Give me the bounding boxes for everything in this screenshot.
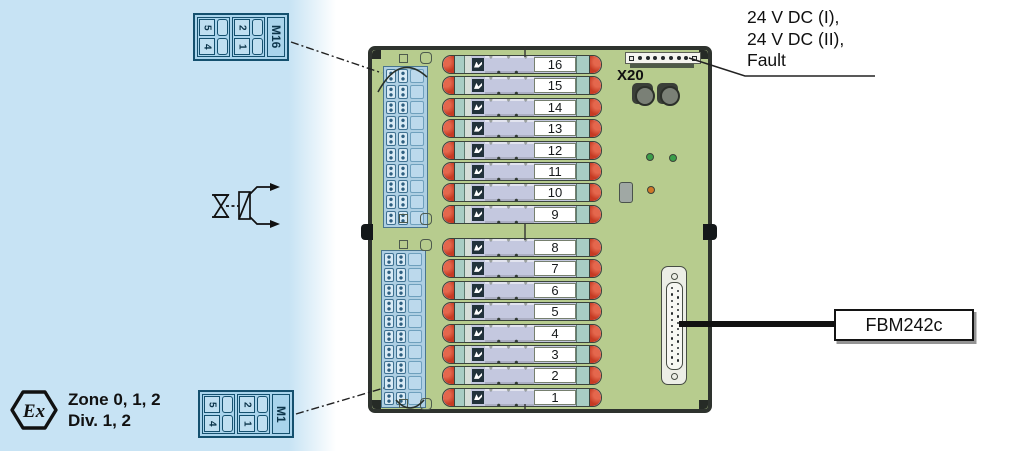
mounting-clip-right	[703, 224, 717, 240]
module-red-cap-icon	[443, 346, 455, 363]
terminal-cell	[408, 268, 422, 281]
module-segment	[465, 120, 471, 137]
channel-module: 9	[442, 205, 602, 224]
module-segment	[465, 303, 471, 320]
module-red-cap-icon	[589, 56, 601, 73]
x20-pin-icon	[677, 56, 681, 60]
terminal-pin-cell	[398, 164, 408, 178]
module-logo-icon	[472, 144, 484, 157]
module-end-segment	[576, 282, 589, 299]
terminal-cell	[410, 69, 424, 83]
module-end-segment	[455, 303, 465, 320]
module-end-segment	[455, 282, 465, 299]
mounting-hole	[420, 398, 432, 410]
terminal-pin-cell	[398, 101, 408, 115]
module-body	[485, 367, 534, 384]
mounting-hole	[399, 399, 408, 408]
module-end-segment	[455, 163, 465, 180]
channel-module: 14	[442, 98, 602, 117]
mounting-hole	[399, 214, 408, 223]
module-segment	[465, 77, 471, 94]
module-red-cap-icon	[443, 99, 455, 116]
terminal-pin-cell	[398, 85, 408, 99]
module-red-cap-icon	[589, 346, 601, 363]
dsub-pin	[677, 353, 679, 355]
hazard-zone-label: Ex Zone 0, 1, 2 Div. 1, 2	[10, 388, 161, 432]
module-segment	[465, 163, 471, 180]
dsub-pin	[671, 337, 673, 339]
dsub-pin	[671, 319, 673, 321]
terminal-cell	[408, 253, 422, 266]
ex-hexagon-icon: Ex	[10, 388, 58, 432]
module-segment	[465, 346, 471, 363]
orange-led	[647, 186, 655, 194]
channel-module: 8	[442, 238, 602, 257]
channel-module: 15	[442, 76, 602, 95]
power-line-1: 24 V DC (I),	[747, 7, 844, 29]
terminal-pin-cell	[384, 315, 394, 328]
module-red-cap-icon	[589, 389, 601, 406]
module-red-cap-icon	[443, 120, 455, 137]
dsub-pin	[671, 363, 673, 365]
channel-module: 11	[442, 162, 602, 181]
module-body	[485, 303, 534, 320]
terminal-cell	[408, 330, 422, 343]
terminal-block-m16: 5 4 2 1 M16	[193, 13, 289, 61]
channel-number-label: 6	[534, 283, 576, 298]
module-body	[485, 120, 534, 137]
mounting-hole	[399, 240, 408, 249]
channel-module: 13	[442, 119, 602, 138]
module-segment	[465, 184, 471, 201]
terminal-pin-cell	[396, 253, 406, 266]
dsub-pin	[671, 331, 673, 333]
terminal-block-m1: 5 4 2 1 M1	[198, 390, 294, 438]
dsub-pin	[677, 290, 679, 292]
terminal-cell	[408, 284, 422, 297]
channel-module: 16	[442, 55, 602, 74]
dsub-pin	[671, 287, 673, 289]
x20-connector	[625, 52, 701, 64]
dsub-pin	[671, 300, 673, 302]
channel-number-label: 3	[534, 347, 576, 362]
mounting-clip-left	[361, 224, 373, 240]
module-body	[485, 260, 534, 277]
dsub-pin	[671, 344, 673, 346]
terminal-pin-cell	[386, 211, 396, 225]
dsub-connector	[661, 266, 687, 385]
channel-number-label: 16	[534, 57, 576, 72]
channel-number-label: 2	[534, 368, 576, 383]
module-red-cap-icon	[589, 282, 601, 299]
module-body	[485, 142, 534, 159]
terminal-pin-cell	[386, 164, 396, 178]
module-logo-icon	[472, 58, 484, 71]
channel-module: 12	[442, 141, 602, 160]
dsub-pin	[671, 325, 673, 327]
mounting-hole	[420, 213, 432, 225]
terminal-pin-cell	[384, 361, 394, 374]
fuse-holder-icon	[632, 83, 653, 104]
module-end-segment	[576, 120, 589, 137]
module-segment	[465, 367, 471, 384]
module-end-segment	[455, 325, 465, 342]
module-end-segment	[576, 303, 589, 320]
fbm242c-label-box: FBM242c	[834, 309, 974, 341]
terminal-pin-cell	[384, 284, 394, 297]
board-corner-notch	[699, 400, 708, 409]
terminal-pin-slot	[222, 415, 233, 432]
terminal-pin-cell	[396, 330, 406, 343]
terminal-cell	[408, 361, 422, 374]
module-end-segment	[455, 367, 465, 384]
dsub-pin	[677, 334, 679, 336]
terminal-group: 2 1	[237, 394, 270, 434]
module-red-cap-icon	[443, 239, 455, 256]
terminal-pin-cell	[384, 268, 394, 281]
module-logo-icon	[472, 186, 484, 199]
dsub-pin	[677, 359, 679, 361]
module-body	[485, 325, 534, 342]
terminal-pin-slot	[257, 396, 268, 413]
terminal-pin-cell	[386, 195, 396, 209]
dsub-pin	[671, 312, 673, 314]
module-body	[485, 389, 534, 406]
terminal-pin-cell	[396, 315, 406, 328]
terminal-pin-cell	[386, 69, 396, 83]
module-segment	[465, 56, 471, 73]
module-end-segment	[455, 99, 465, 116]
module-red-cap-icon	[443, 389, 455, 406]
green-led	[646, 153, 654, 161]
channel-module: 10	[442, 183, 602, 202]
module-red-cap-icon	[443, 303, 455, 320]
dsub-pin	[677, 315, 679, 317]
terminal-pin-slot	[222, 396, 233, 413]
terminal-cell	[410, 101, 424, 115]
module-end-segment	[576, 163, 589, 180]
module-segment	[465, 142, 471, 159]
module-red-cap-icon	[589, 163, 601, 180]
terminal-group: 5 4	[197, 17, 230, 57]
channel-module: 2	[442, 366, 602, 385]
module-segment	[465, 389, 471, 406]
module-segment	[465, 282, 471, 299]
module-segment	[465, 325, 471, 342]
channel-group-top: 16 15	[442, 55, 602, 224]
board-corner-notch	[372, 50, 381, 59]
fbm242c-label: FBM242c	[865, 315, 942, 336]
module-end-segment	[455, 56, 465, 73]
module-red-cap-icon	[589, 77, 601, 94]
channel-module: 6	[442, 281, 602, 300]
module-logo-icon	[472, 391, 484, 404]
module-logo-icon	[472, 122, 484, 135]
channel-number-label: 15	[534, 78, 576, 93]
module-logo-icon	[472, 348, 484, 361]
module-end-segment	[455, 120, 465, 137]
terminal-pin-cell	[398, 69, 408, 83]
channel-module: 4	[442, 324, 602, 343]
terminal-group: 2 1	[232, 17, 265, 57]
module-red-cap-icon	[443, 260, 455, 277]
x20-label: X20	[617, 67, 644, 84]
module-red-cap-icon	[443, 325, 455, 342]
terminal-pin-number: 5	[204, 396, 220, 413]
module-body	[485, 346, 534, 363]
module-body	[485, 239, 534, 256]
terminal-cell	[410, 116, 424, 130]
dsub-pin-field	[666, 282, 683, 370]
dsub-pin	[677, 328, 679, 330]
module-body	[485, 56, 534, 73]
module-red-cap-icon	[443, 184, 455, 201]
terminal-pin-cell	[384, 392, 394, 405]
terminal-pin-cell	[384, 253, 394, 266]
terminal-pin-number: 1	[234, 38, 250, 55]
module-red-cap-icon	[443, 206, 455, 223]
terminal-pin-cell	[398, 148, 408, 162]
x20-pin-icon	[646, 56, 650, 60]
module-logo-icon	[472, 208, 484, 221]
x20-pin-icon	[669, 56, 673, 60]
module-red-cap-icon	[589, 184, 601, 201]
module-red-cap-icon	[589, 206, 601, 223]
terminal-cell	[408, 315, 422, 328]
terminal-pin-cell	[398, 180, 408, 194]
module-end-segment	[576, 260, 589, 277]
module-red-cap-icon	[589, 260, 601, 277]
terminal-pin-cell	[386, 148, 396, 162]
channel-number-label: 13	[534, 121, 576, 136]
terminal-pin-number: 2	[234, 19, 250, 36]
dsub-pin	[677, 303, 679, 305]
module-segment	[465, 260, 471, 277]
terminal-pin-number: 4	[204, 415, 220, 432]
module-red-cap-icon	[589, 303, 601, 320]
module-body	[485, 282, 534, 299]
module-body	[485, 99, 534, 116]
terminal-pin-cell	[384, 299, 394, 312]
terminal-pin-cell	[386, 85, 396, 99]
module-body	[485, 184, 534, 201]
mounting-hole	[420, 239, 432, 251]
module-red-cap-icon	[443, 142, 455, 159]
terminal-cell	[408, 345, 422, 358]
termination-assembly-board: 16 15	[368, 46, 712, 413]
channel-number-label: 1	[534, 390, 576, 405]
channel-number-label: 14	[534, 100, 576, 115]
terminal-pin-slot	[257, 415, 268, 432]
module-red-cap-icon	[443, 77, 455, 94]
module-body	[485, 163, 534, 180]
x20-pin-icon	[692, 56, 697, 61]
module-end-segment	[455, 239, 465, 256]
module-end-segment	[455, 184, 465, 201]
module-logo-icon	[472, 241, 484, 254]
dsub-pin	[671, 306, 673, 308]
module-end-segment	[455, 206, 465, 223]
terminal-pin-slot	[252, 19, 263, 36]
module-red-cap-icon	[443, 282, 455, 299]
terminal-pin-cell	[396, 345, 406, 358]
module-end-segment	[576, 56, 589, 73]
terminal-pin-cell	[398, 195, 408, 209]
terminal-pin-slot	[217, 38, 228, 55]
module-end-segment	[576, 77, 589, 94]
terminal-pin-number: 5	[199, 19, 215, 36]
module-end-segment	[455, 389, 465, 406]
channel-module: 3	[442, 345, 602, 364]
channel-number-label: 5	[534, 304, 576, 319]
module-end-segment	[576, 142, 589, 159]
power-annotation: 24 V DC (I), 24 V DC (II), Fault	[747, 7, 844, 72]
terminal-pin-cell	[386, 101, 396, 115]
power-line-3: Fault	[747, 50, 844, 72]
module-end-segment	[576, 367, 589, 384]
field-terminal-strip-bottom	[381, 250, 426, 408]
terminal-pin-cell	[398, 116, 408, 130]
module-end-segment	[455, 142, 465, 159]
terminal-block-label: M1	[272, 394, 290, 434]
channel-module: 1	[442, 388, 602, 407]
module-red-cap-icon	[589, 367, 601, 384]
terminal-pin-cell	[386, 180, 396, 194]
dsub-pin	[671, 293, 673, 295]
module-logo-icon	[472, 327, 484, 340]
module-segment	[465, 239, 471, 256]
terminal-cell	[408, 376, 422, 389]
terminal-pin-cell	[396, 376, 406, 389]
terminal-cell	[410, 195, 424, 209]
module-end-segment	[455, 77, 465, 94]
terminal-pin-cell	[396, 284, 406, 297]
terminal-cell	[410, 180, 424, 194]
terminal-pin-cell	[384, 330, 394, 343]
diagram-canvas: 5 4 2 1 M16 5 4 2 1 M1	[0, 0, 1024, 451]
module-segment	[465, 206, 471, 223]
module-logo-icon	[472, 305, 484, 318]
terminal-pin-cell	[384, 345, 394, 358]
dsub-pin	[677, 322, 679, 324]
terminal-pin-cell	[386, 116, 396, 130]
terminal-pin-number: 1	[239, 415, 255, 432]
x20-pin-icon	[638, 56, 642, 60]
module-end-segment	[576, 206, 589, 223]
ex-mark-text: Ex	[22, 401, 46, 422]
terminal-group: 5 4	[202, 394, 235, 434]
dsub-pin	[671, 356, 673, 358]
x20-pin-icon	[684, 56, 688, 60]
module-logo-icon	[472, 79, 484, 92]
board-corner-notch	[372, 400, 381, 409]
module-segment	[465, 99, 471, 116]
mounting-hole	[420, 52, 432, 64]
channel-number-label: 7	[534, 261, 576, 276]
module-logo-icon	[472, 262, 484, 275]
terminal-cell	[410, 148, 424, 162]
channel-number-label: 8	[534, 240, 576, 255]
module-red-cap-icon	[443, 367, 455, 384]
terminal-pin-cell	[396, 268, 406, 281]
channel-number-label: 9	[534, 207, 576, 222]
x20-pin-icon	[653, 56, 657, 60]
gray-component	[619, 182, 633, 203]
module-end-segment	[576, 184, 589, 201]
module-red-cap-icon	[443, 56, 455, 73]
dsub-pin	[677, 340, 679, 342]
x20-pin-icon	[661, 56, 665, 60]
module-logo-icon	[472, 101, 484, 114]
module-red-cap-icon	[589, 325, 601, 342]
zone-line: Zone 0, 1, 2	[68, 389, 161, 410]
hazardous-zone-background	[0, 0, 336, 451]
field-terminal-strip-top	[383, 66, 428, 228]
channel-module: 5	[442, 302, 602, 321]
module-body	[485, 206, 534, 223]
terminal-pin-cell	[398, 132, 408, 146]
channel-number-label: 11	[534, 164, 576, 179]
dsub-pin	[677, 296, 679, 298]
terminal-cell	[410, 132, 424, 146]
module-end-segment	[576, 239, 589, 256]
terminal-pin-cell	[384, 376, 394, 389]
channel-number-label: 12	[534, 143, 576, 158]
module-red-cap-icon	[443, 163, 455, 180]
terminal-pin-slot	[217, 19, 228, 36]
channel-number-label: 10	[534, 185, 576, 200]
dsub-screw-hole	[671, 373, 678, 380]
dsub-pin	[671, 350, 673, 352]
module-red-cap-icon	[589, 142, 601, 159]
channel-group-bottom: 8 7	[442, 238, 602, 407]
module-end-segment	[455, 260, 465, 277]
dsub-screw-hole	[671, 273, 678, 280]
terminal-pin-cell	[396, 299, 406, 312]
module-end-segment	[455, 346, 465, 363]
channel-module: 7	[442, 259, 602, 278]
module-end-segment	[576, 325, 589, 342]
fuse-holder-icon	[657, 83, 678, 104]
terminal-block-label: M16	[267, 17, 285, 57]
module-red-cap-icon	[589, 120, 601, 137]
module-logo-icon	[472, 165, 484, 178]
terminal-pin-cell	[396, 361, 406, 374]
terminal-cell	[410, 164, 424, 178]
module-end-segment	[576, 346, 589, 363]
dsub-pin	[677, 347, 679, 349]
module-body	[485, 77, 534, 94]
terminal-cell	[410, 85, 424, 99]
module-red-cap-icon	[589, 239, 601, 256]
mounting-hole	[399, 54, 408, 63]
module-end-segment	[576, 389, 589, 406]
green-led	[669, 154, 677, 162]
div-line: Div. 1, 2	[68, 410, 161, 431]
module-logo-icon	[472, 369, 484, 382]
module-end-segment	[576, 99, 589, 116]
terminal-pin-cell	[386, 132, 396, 146]
terminal-cell	[408, 299, 422, 312]
x20-pin-icon	[629, 56, 634, 61]
channel-number-label: 4	[534, 326, 576, 341]
dsub-pin	[677, 309, 679, 311]
module-logo-icon	[472, 284, 484, 297]
module-red-cap-icon	[589, 99, 601, 116]
power-line-2: 24 V DC (II),	[747, 29, 844, 51]
terminal-pin-slot	[252, 38, 263, 55]
terminal-pin-number: 4	[199, 38, 215, 55]
